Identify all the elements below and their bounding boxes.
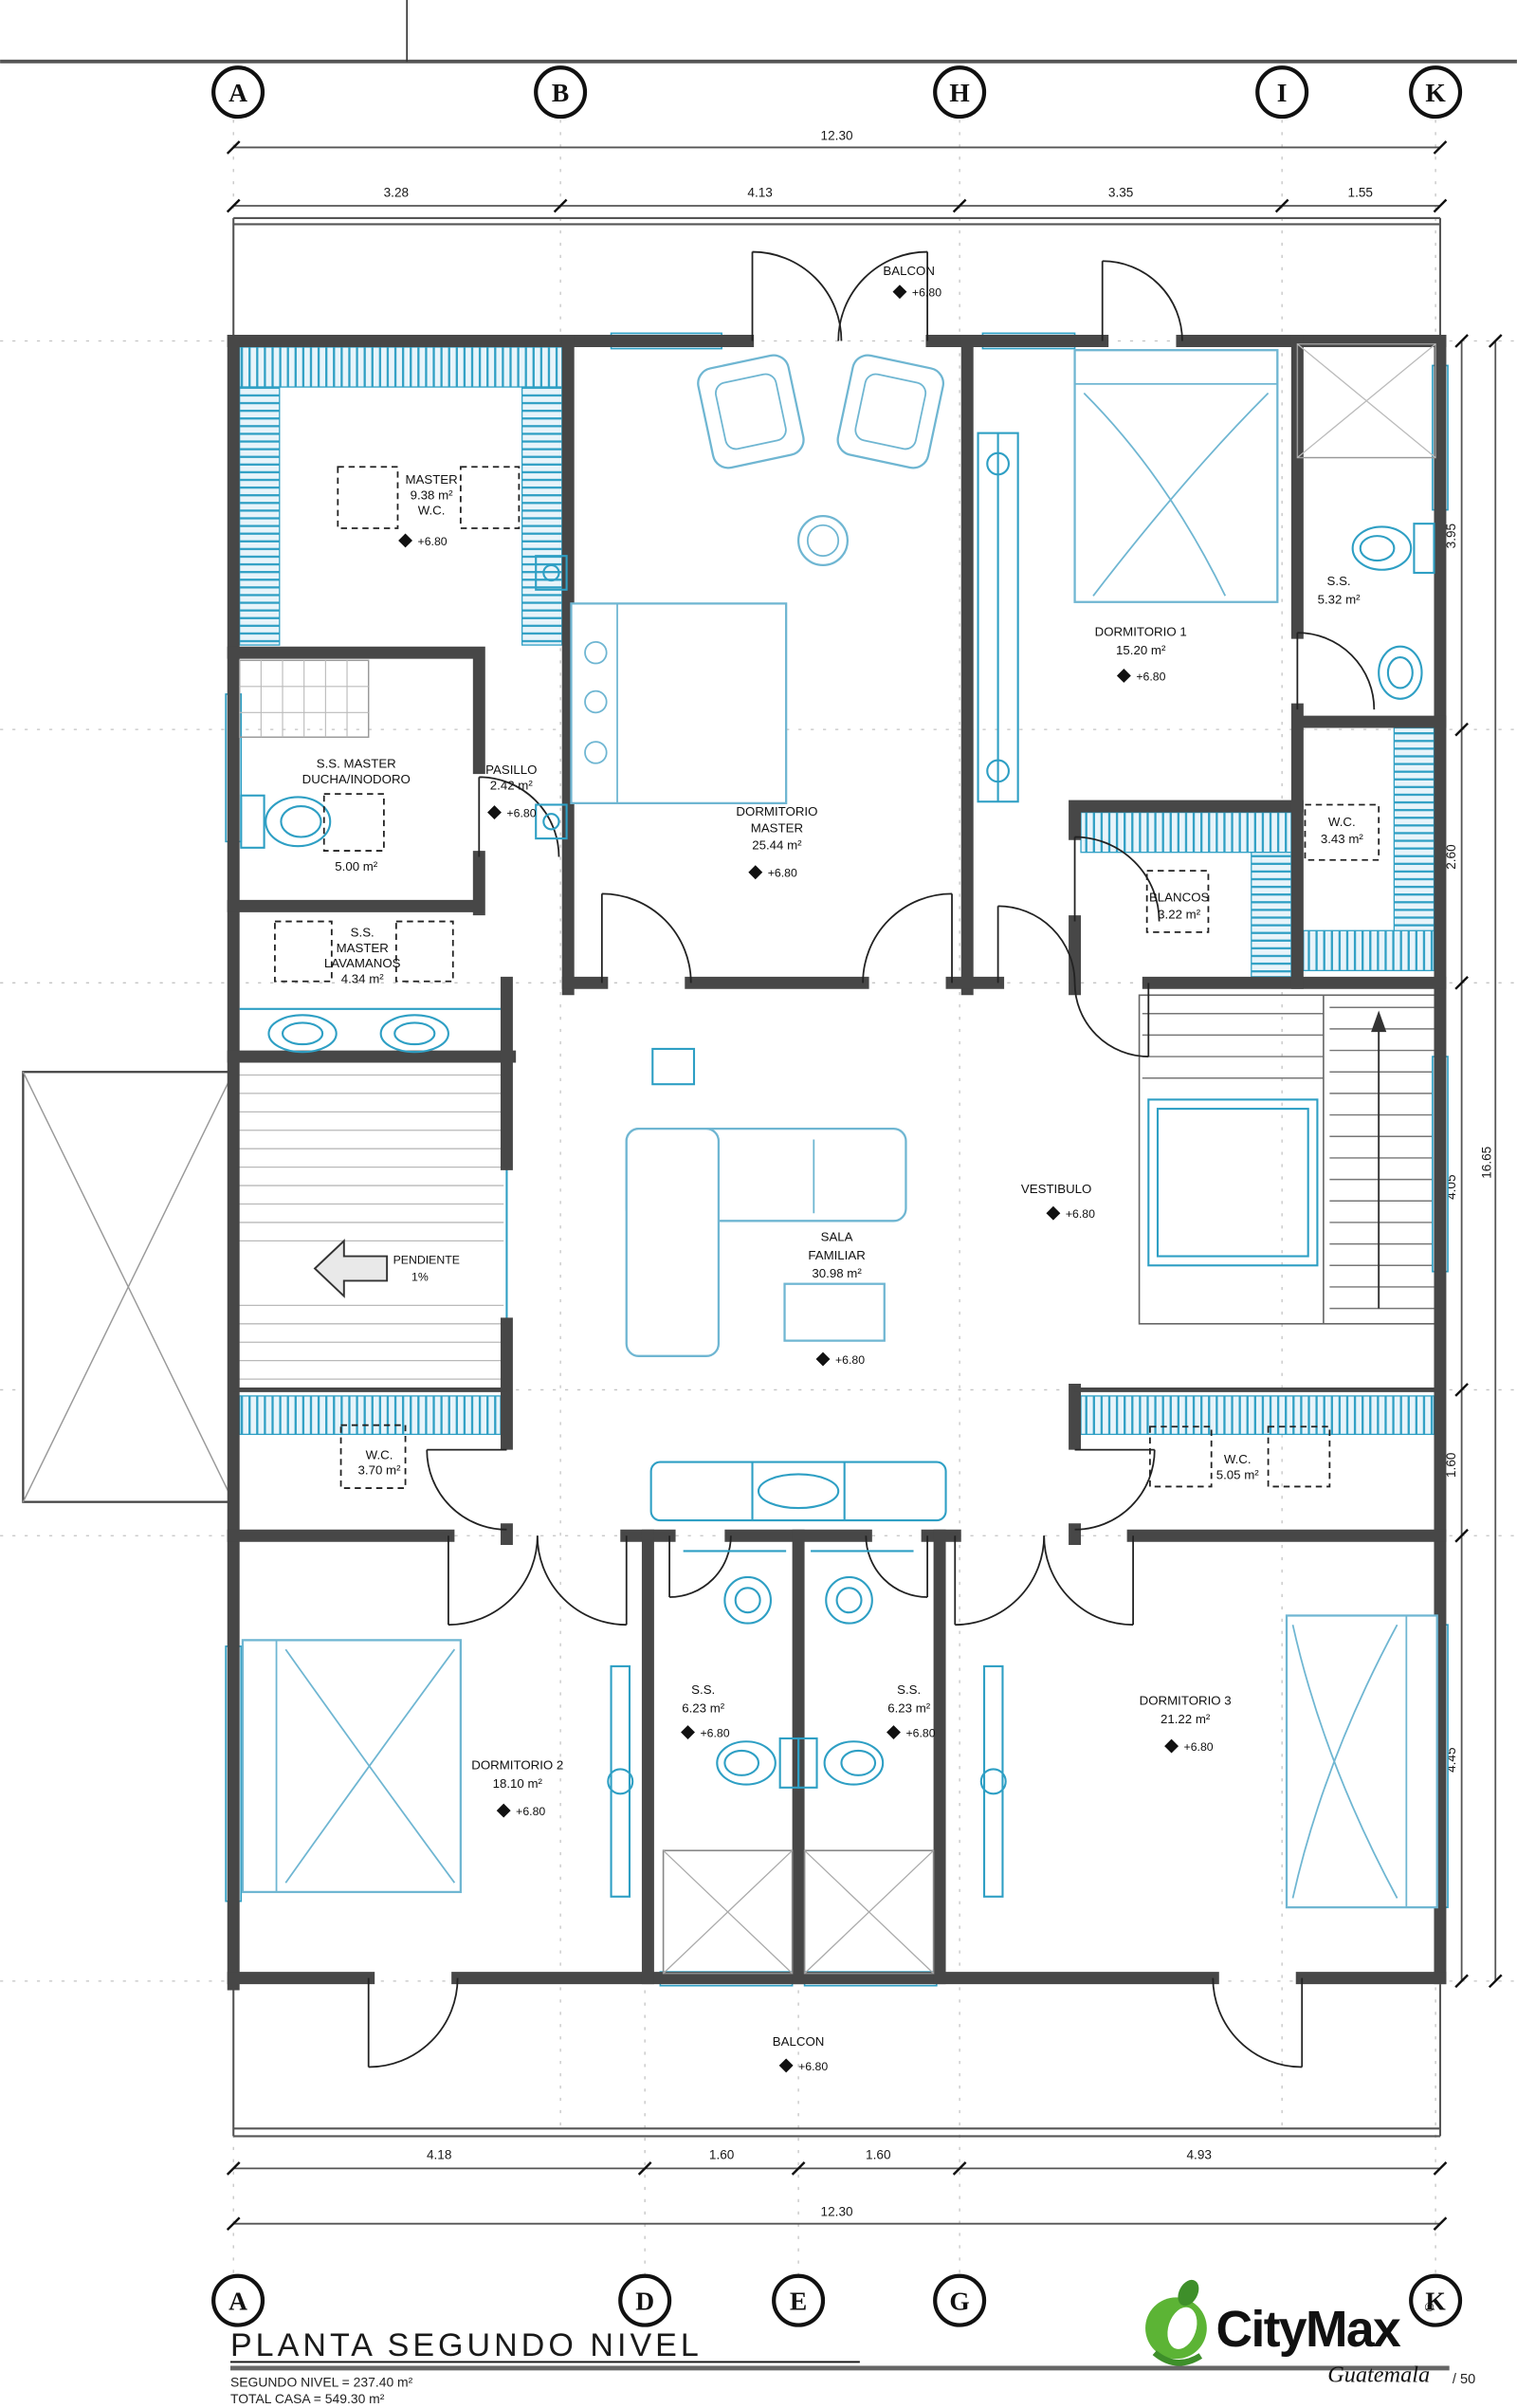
wc505-area: 5.05 m² bbox=[1216, 1467, 1260, 1481]
balcon-bottom-label: BALCON bbox=[773, 2034, 825, 2049]
pasillo-area: 2.42 m² bbox=[490, 778, 534, 792]
level-area-stat: SEGUNDO NIVEL = 237.40 m² bbox=[230, 2374, 413, 2389]
lavamanos-area: 4.34 m² bbox=[341, 971, 385, 985]
master-wc-area: 9.38 m² bbox=[411, 487, 454, 502]
level-marker-icon bbox=[779, 2058, 794, 2072]
dorm1-label: DORMITORIO 1 bbox=[1095, 624, 1187, 638]
ss623-left-label: S.S. bbox=[691, 1682, 715, 1697]
dim-bottom-seg1: 4.18 bbox=[427, 2148, 451, 2162]
level-marker-icon bbox=[886, 1725, 901, 1739]
dimensions-right: 3.95 2.60 4.05 1.60 4.45 16.65 bbox=[1444, 335, 1502, 1987]
sheet-border bbox=[0, 0, 1517, 62]
level-marker-icon bbox=[816, 1352, 831, 1367]
dorm3-area: 21.22 m² bbox=[1161, 1712, 1211, 1726]
wc370-label: W.C. bbox=[366, 1447, 393, 1461]
dorm2-label: DORMITORIO 2 bbox=[471, 1757, 563, 1772]
vestibulo-label: VESTIBULO bbox=[1021, 1182, 1091, 1196]
level-marker-icon bbox=[681, 1725, 695, 1739]
ss-ducha-label1: S.S. MASTER bbox=[317, 757, 396, 771]
wc343-area: 3.43 m² bbox=[1321, 832, 1364, 846]
balcon-top-level: +6.80 bbox=[912, 286, 941, 300]
citymax-leaf-icon bbox=[1145, 2276, 1207, 2362]
floor-plan-sheet: A B H I K 12.30 3.28 4.13 3.35 1.55 3.95 bbox=[0, 0, 1517, 2408]
total-area-stat: TOTAL CASA = 549.30 m² bbox=[230, 2391, 385, 2406]
lavamanos-label2: MASTER bbox=[337, 941, 389, 955]
dorm3-level: +6.80 bbox=[1184, 1740, 1214, 1754]
staircase bbox=[1140, 995, 1437, 1324]
ss-ducha-label2: DUCHA/INODORO bbox=[302, 772, 411, 786]
ss623-right-area: 6.23 m² bbox=[887, 1700, 931, 1715]
grid-label-bottom-g: G bbox=[949, 2286, 969, 2315]
master-wc-label: MASTER bbox=[405, 472, 457, 487]
lavamanos-label1: S.S. bbox=[351, 926, 375, 940]
scale-text: / 50 bbox=[1453, 2372, 1475, 2387]
level-marker-icon bbox=[1164, 1739, 1179, 1754]
pendiente-percent: 1% bbox=[411, 1270, 429, 1283]
dimensions-top: 12.30 3.28 4.13 3.35 1.55 bbox=[228, 128, 1447, 211]
level-marker-icon bbox=[893, 285, 907, 299]
pasillo-level: +6.80 bbox=[506, 806, 536, 819]
level-marker-icon bbox=[398, 534, 412, 548]
grid-label-bottom-e: E bbox=[790, 2286, 807, 2315]
master-wc-sub: W.C. bbox=[418, 503, 446, 517]
balcon-top-label: BALCON bbox=[883, 264, 935, 278]
grid-label-top-b: B bbox=[552, 78, 569, 107]
slope-arrow-icon bbox=[315, 1241, 387, 1296]
floor-plan-drawing: A B H I K 12.30 3.28 4.13 3.35 1.55 3.95 bbox=[0, 0, 1517, 2408]
grid-label-bottom-a: A bbox=[228, 2286, 247, 2315]
level-marker-icon bbox=[497, 1804, 511, 1818]
dorm2-level: +6.80 bbox=[516, 1805, 545, 1818]
pasillo-label: PASILLO bbox=[485, 763, 537, 777]
ramp-deck bbox=[236, 1075, 506, 1379]
lavamanos-label3: LAVAMANOS bbox=[324, 956, 401, 970]
dim-top-total: 12.30 bbox=[821, 128, 853, 142]
dim-bottom-seg4: 4.93 bbox=[1186, 2148, 1211, 2162]
roof-lightwell bbox=[23, 1072, 233, 1501]
dorm3-label: DORMITORIO 3 bbox=[1140, 1693, 1232, 1707]
ss1-label: S.S. bbox=[1327, 574, 1351, 588]
dim-top-seg2: 4.13 bbox=[747, 185, 772, 199]
level-marker-icon bbox=[748, 865, 762, 879]
master-wc-level: +6.80 bbox=[418, 535, 448, 548]
grid-label-top-h: H bbox=[949, 78, 969, 107]
dorm2-area: 18.10 m² bbox=[493, 1776, 543, 1791]
registered-mark: ® bbox=[1425, 2300, 1435, 2314]
furniture bbox=[243, 350, 1437, 1907]
wc505-label: W.C. bbox=[1224, 1452, 1252, 1466]
dorm-master-level: +6.80 bbox=[768, 867, 797, 880]
grid-label-bottom-d: D bbox=[635, 2286, 654, 2315]
dim-right-total: 16.65 bbox=[1479, 1147, 1493, 1179]
citymax-brand-text: CityMax bbox=[1216, 2302, 1401, 2358]
dorm-master-label2: MASTER bbox=[751, 821, 803, 836]
dim-bottom-seg3: 1.60 bbox=[866, 2148, 891, 2162]
grid-label-top-i: I bbox=[1277, 78, 1288, 107]
logo-region-text: Guatemala bbox=[1327, 2362, 1430, 2387]
dim-top-seg3: 3.35 bbox=[1108, 185, 1133, 199]
sala-label2: FAMILIAR bbox=[808, 1248, 865, 1262]
vestibulo-level: +6.80 bbox=[1066, 1207, 1095, 1221]
sala-label1: SALA bbox=[821, 1229, 853, 1243]
dorm1-area: 15.20 m² bbox=[1116, 643, 1166, 657]
ss623-left-area: 6.23 m² bbox=[682, 1700, 725, 1715]
ss623-right-level: +6.80 bbox=[905, 1726, 935, 1739]
sala-area: 30.98 m² bbox=[812, 1266, 862, 1280]
dim-bottom-seg2: 1.60 bbox=[709, 2148, 735, 2162]
grid-bubbles-top: A B H I K bbox=[213, 67, 1460, 117]
ss-ducha-area: 5.00 m² bbox=[335, 859, 378, 873]
level-marker-icon bbox=[1117, 669, 1131, 683]
dorm1-level: +6.80 bbox=[1136, 670, 1165, 683]
ss623-right-label: S.S. bbox=[897, 1682, 921, 1697]
ss623-left-level: +6.80 bbox=[700, 1726, 729, 1739]
blancos-area: 3.22 m² bbox=[1158, 907, 1201, 921]
plan-title: PLANTA SEGUNDO NIVEL bbox=[230, 2327, 703, 2363]
dimensions-bottom: 4.18 1.60 1.60 4.93 12.30 bbox=[228, 2148, 1447, 2230]
dim-bottom-total: 12.30 bbox=[821, 2205, 853, 2219]
stair-direction-arrow bbox=[1371, 1010, 1386, 1032]
ss1-area: 5.32 m² bbox=[1318, 592, 1362, 606]
grid-label-top-k: K bbox=[1425, 78, 1446, 107]
blancos-label: BLANCOS bbox=[1149, 891, 1210, 905]
level-marker-icon bbox=[1046, 1206, 1060, 1221]
level-marker-icon bbox=[487, 805, 502, 819]
grid-label-top-a: A bbox=[228, 78, 247, 107]
wc370-area: 3.70 m² bbox=[358, 1462, 402, 1477]
sala-level: +6.80 bbox=[835, 1353, 865, 1367]
dorm-master-label1: DORMITORIO bbox=[736, 804, 817, 818]
dorm-master-area: 25.44 m² bbox=[752, 837, 802, 852]
balcon-bottom-level: +6.80 bbox=[798, 2060, 828, 2073]
wc343-label: W.C. bbox=[1328, 815, 1356, 829]
dim-top-seg4: 1.55 bbox=[1348, 185, 1373, 199]
dim-top-seg1: 3.28 bbox=[384, 185, 409, 199]
pendiente-label: PENDIENTE bbox=[393, 1254, 460, 1267]
